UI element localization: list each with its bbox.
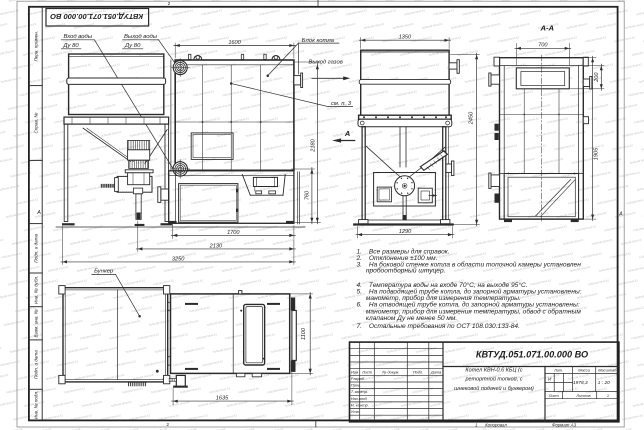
- svg-text:Листов: Листов: [575, 393, 590, 398]
- svg-text:Остальные требования по ОСТ 10: Остальные требования по ОСТ 108.030.133-…: [369, 322, 520, 330]
- svg-text:Изм: Изм: [351, 369, 359, 374]
- svg-text:Вход воды: Вход воды: [64, 34, 93, 40]
- svg-text:А-А: А-А: [540, 23, 555, 32]
- svg-text:Ду 80: Ду 80: [62, 43, 79, 49]
- svg-text:Подп. и дата: Подп. и дата: [33, 350, 38, 379]
- svg-text:Инв. № дубл.: Инв. № дубл.: [33, 276, 38, 304]
- svg-text:Масштаб: Масштаб: [598, 367, 617, 372]
- svg-text:2: 2: [166, 422, 169, 428]
- svg-text:Инв. № подл.: Инв. № подл.: [33, 391, 38, 420]
- svg-text:1: 1: [607, 393, 609, 398]
- svg-text:Дата: Дата: [430, 369, 442, 374]
- svg-text:Лист: Лист: [361, 369, 373, 374]
- svg-text:1905: 1905: [593, 147, 599, 160]
- svg-text:1350: 1350: [399, 35, 412, 41]
- svg-text:Подп. и дата: Подп. и дата: [33, 233, 38, 262]
- svg-text:200: 200: [594, 72, 600, 83]
- svg-text:Копировал: Копировал: [485, 422, 507, 427]
- svg-text:1978,3: 1978,3: [573, 380, 588, 386]
- svg-text:Формат А3: Формат А3: [552, 422, 577, 427]
- svg-text:Масса: Масса: [578, 367, 590, 372]
- svg-text:1600: 1600: [228, 40, 241, 46]
- svg-text:2: 2: [168, 1, 171, 7]
- svg-text:Лит.: Лит.: [553, 367, 563, 372]
- svg-text:пробоотборный штуцер.: пробоотборный штуцер.: [366, 266, 446, 274]
- svg-text:700: 700: [538, 42, 548, 48]
- svg-text:А: А: [36, 210, 41, 216]
- svg-text:Утв.: Утв.: [351, 409, 360, 414]
- svg-text:Нач.отд.: Нач.отд.: [351, 396, 368, 401]
- svg-text:Бункер: Бункер: [94, 269, 114, 275]
- svg-text:3.: 3.: [357, 261, 363, 268]
- svg-text:1700: 1700: [227, 230, 240, 236]
- svg-text:клапаном Ду не менее 50 мм.: клапаном Ду не менее 50 мм.: [366, 315, 458, 322]
- svg-text:ретортной топкой, с: ретортной топкой, с: [464, 376, 522, 383]
- svg-text:1290: 1290: [399, 229, 412, 235]
- svg-text:А: А: [618, 212, 623, 218]
- svg-text:Взам. инв. №: Взам. инв. №: [33, 309, 38, 337]
- svg-text:6.: 6.: [357, 302, 363, 309]
- svg-text:2450: 2450: [469, 111, 475, 125]
- svg-text:Выход воды: Выход воды: [124, 34, 158, 40]
- svg-text:Лист: Лист: [548, 393, 560, 398]
- svg-text:2180: 2180: [310, 138, 316, 152]
- svg-text:КВТУД.051.071.00.000 ВО: КВТУД.051.071.00.000 ВО: [476, 349, 588, 359]
- svg-text:1 : 20: 1 : 20: [598, 380, 610, 386]
- svg-text:КВТУД.051.071.00.000 ВО: КВТУД.051.071.00.000 ВО: [50, 12, 143, 21]
- svg-text:Н. контр.: Н. контр.: [351, 403, 369, 408]
- svg-text:см. п. 3: см. п. 3: [331, 101, 352, 107]
- svg-text:№ докум.: № докум.: [382, 369, 399, 374]
- svg-text:Разраб.: Разраб.: [351, 376, 365, 381]
- svg-text:Выход газов: Выход газов: [309, 59, 343, 65]
- svg-text:А: А: [344, 129, 350, 138]
- svg-text:Котел КВН-0,6 КБЦ (с: Котел КВН-0,6 КБЦ (с: [465, 367, 522, 373]
- svg-text:шнековой подачей и бункером): шнековой подачей и бункером): [454, 385, 534, 392]
- svg-text:5.: 5.: [357, 289, 363, 296]
- svg-text:Т. контр.: Т. контр.: [351, 389, 368, 394]
- svg-text:760: 760: [305, 190, 311, 200]
- svg-text:1100: 1100: [301, 327, 307, 340]
- svg-text:Перв. примен.: Перв. примен.: [33, 31, 38, 62]
- svg-text:Ду 80: Ду 80: [124, 43, 141, 49]
- svg-text:3250: 3250: [172, 256, 185, 262]
- svg-text:Подп.: Подп.: [413, 369, 423, 374]
- svg-text:1635: 1635: [216, 395, 229, 401]
- svg-text:Пров.: Пров.: [351, 383, 362, 388]
- svg-text:7.: 7.: [357, 323, 363, 330]
- svg-text:2130: 2130: [209, 243, 223, 249]
- svg-text:Справ. №: Справ. №: [33, 113, 38, 134]
